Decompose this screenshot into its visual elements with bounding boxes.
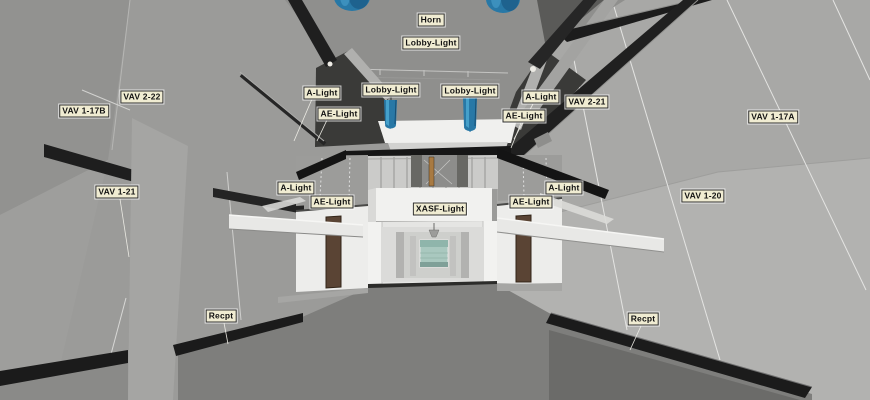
tag-ae-light-mid-right[interactable]: AE-Light (509, 196, 552, 209)
beam-node (530, 66, 536, 72)
tag-vav-1-20[interactable]: VAV 1-20 (681, 190, 724, 203)
tag-a-light-upper-left[interactable]: A-Light (303, 87, 340, 100)
glass-transom (420, 240, 448, 247)
tag-a-light-mid-right[interactable]: A-Light (545, 182, 582, 195)
glass-base-row (420, 262, 448, 267)
scene-3d (0, 0, 870, 400)
tag-recpt-right[interactable]: Recpt (628, 313, 659, 326)
tag-ae-light-upper-right[interactable]: AE-Light (502, 110, 545, 123)
fixture-highlight (386, 100, 389, 126)
tag-vav-2-21[interactable]: VAV 2-21 (565, 96, 608, 109)
tag-lobby-light-right[interactable]: Lobby-Light (441, 85, 498, 98)
recess-column (457, 155, 468, 187)
fixture-highlight (466, 98, 469, 128)
tag-horn[interactable]: Horn (418, 14, 445, 27)
corridor-jamb-left (368, 222, 382, 287)
tag-lobby-light-left[interactable]: Lobby-Light (362, 84, 419, 97)
upper-fascia (378, 119, 517, 143)
tag-a-light-mid-left[interactable]: A-Light (277, 182, 314, 195)
fixture-dome (464, 123, 476, 131)
corridor-jamb-right (483, 221, 497, 284)
wood-column (429, 157, 434, 186)
tag-ae-light-mid-left[interactable]: AE-Light (310, 196, 353, 209)
tag-recpt-left[interactable]: Recpt (206, 310, 237, 323)
tag-xasf-light[interactable]: XASF-Light (413, 203, 467, 216)
tag-vav-1-21[interactable]: VAV 1-21 (95, 186, 138, 199)
corridor-column (396, 232, 404, 278)
recess-column (411, 155, 422, 187)
lobby-floor-strip-right (497, 283, 562, 291)
tag-vav-1-17b[interactable]: VAV 1-17B (59, 105, 109, 118)
tag-lobby-light-top[interactable]: Lobby-Light (402, 37, 459, 50)
corridor-column (410, 236, 416, 276)
fascia-side-shade (368, 188, 376, 223)
beam-node (328, 62, 333, 67)
corridor (368, 221, 497, 290)
corridor-column (461, 232, 469, 278)
tag-ae-light-upper-left[interactable]: AE-Light (317, 108, 360, 121)
tag-vav-2-22[interactable]: VAV 2-22 (120, 91, 163, 104)
tag-vav-1-17a[interactable]: VAV 1-17A (748, 111, 798, 124)
tag-a-light-upper-right[interactable]: A-Light (522, 91, 559, 104)
corridor-column (450, 236, 456, 276)
model-viewport[interactable]: HornLobby-LightVAV 2-22VAV 1-17BA-LightL… (0, 0, 870, 400)
